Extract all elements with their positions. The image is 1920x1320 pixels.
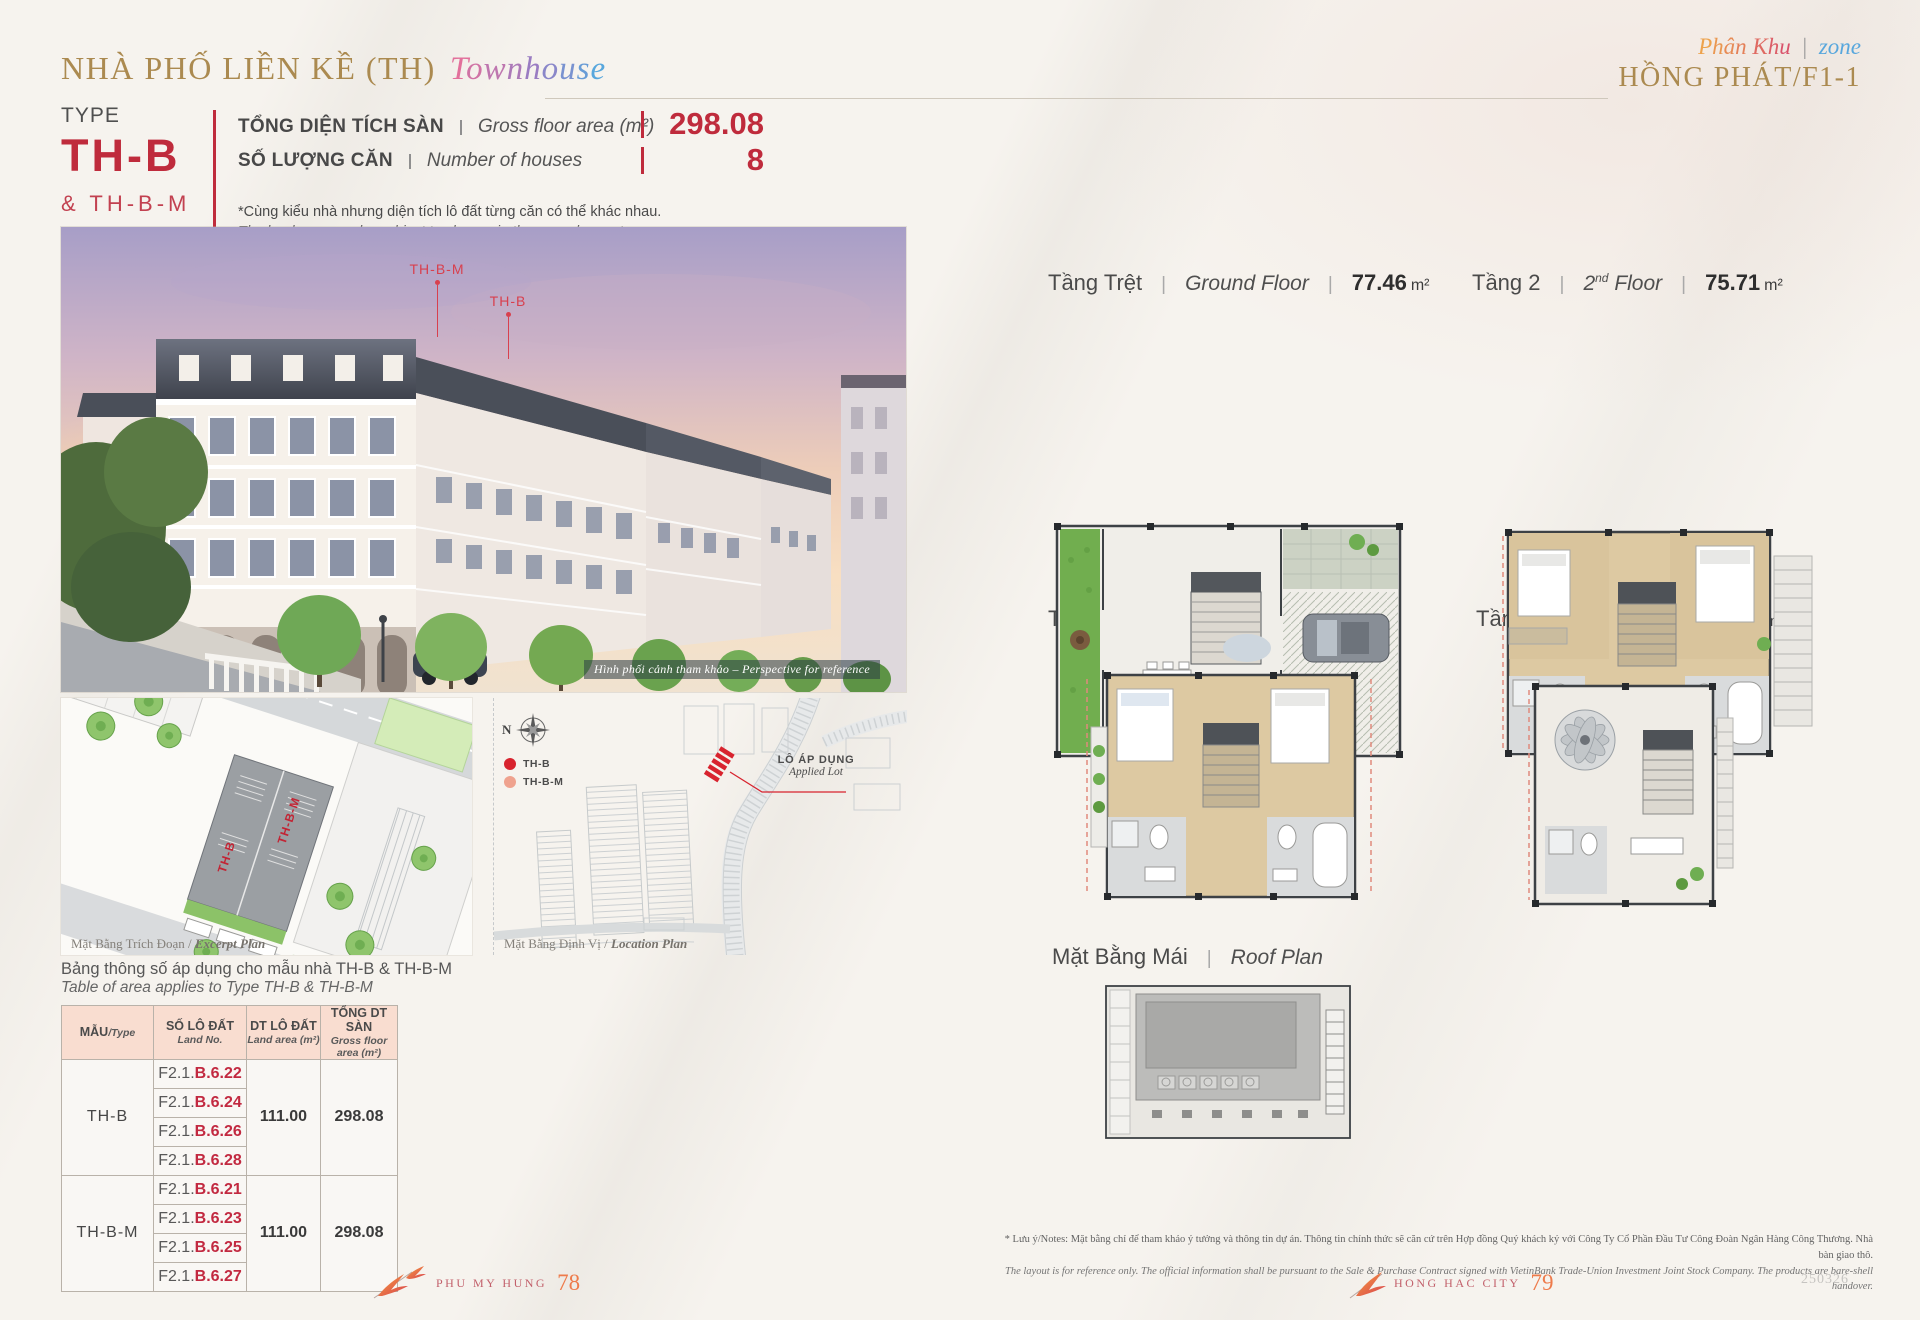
type-note-vi: *Cùng kiểu nhà nhưng diện tích lô đất từ… [238, 202, 661, 222]
roof-plan-drawing [1102, 982, 1359, 1149]
type-code: TH-B [61, 130, 190, 182]
location-plan-caption: Mặt Bằng Định Vị / Location Plan [504, 936, 687, 952]
caption-slash: / [604, 936, 611, 951]
land-area-cell: 111.00 [247, 1059, 321, 1175]
legend-dot-thb [504, 758, 516, 770]
type-cell: TH-B-M [62, 1175, 154, 1291]
table-caption-en: Table of area applies to Type TH-B & TH-… [61, 979, 452, 997]
table-row: TH-B-MF2.1.B.6.21111.00298.08 [62, 1175, 398, 1204]
page-number-right: 79 [1531, 1270, 1554, 1296]
legend-label: TH-B [523, 758, 550, 770]
spec-separator [409, 154, 411, 169]
divider-pipe: | [1161, 274, 1166, 296]
photo-marker-thb: TH-B [482, 293, 534, 359]
header-rule [545, 98, 1608, 99]
spec-label-en: Number of houses [427, 150, 582, 172]
col-header-land-no: SỐ LÔ ĐẤTLand No. [154, 1006, 247, 1060]
divider-pipe: | [1560, 274, 1565, 296]
floor-area-unit: m² [1411, 277, 1430, 295]
type-divider [213, 110, 216, 238]
zone-word: zone [1819, 34, 1861, 59]
spec-row-gross-area: TỔNG DIỆN TÍCH SÀN Gross floor area (m²) [238, 110, 654, 144]
document-code: 250326 [1801, 1272, 1849, 1288]
spec-label-vi: SỐ LƯỢNG CĂN [238, 150, 393, 172]
location-caption-vi: Mặt Bằng Định Vị [504, 936, 601, 951]
lot-number-cell: F2.1.B.6.26 [154, 1117, 247, 1146]
location-plan-panel: N TH-B TH-B-M LÔ ÁP DỤNG Applied Lot Mặt… [493, 698, 907, 955]
spec-list: TỔNG DIỆN TÍCH SÀN Gross floor area (m²)… [238, 110, 654, 178]
divider-pipe: | [1328, 274, 1333, 296]
location-plan-drawing [494, 698, 907, 955]
land-area-cell: 111.00 [247, 1175, 321, 1291]
floor-name-vi: Tầng Trệt [1048, 270, 1142, 296]
footer-left: PHU MY HUNG 78 [372, 1266, 580, 1300]
excerpt-caption-en: Excerpt Plan [195, 936, 265, 951]
area-table-block: Bảng thông số áp dụng cho mẫu nhà TH-B &… [61, 960, 452, 1292]
excerpt-plan-panel: TH-B-M TH-B Mặt Bằng Trí [61, 698, 472, 955]
marker-leader-line [437, 285, 438, 337]
type-block: TYPE TH-B & TH-B-M [61, 104, 190, 217]
zone-name: HỒNG PHÁT/F1-1 [1618, 62, 1861, 94]
caption-slash: / [188, 936, 195, 951]
footer-brand-left: PHU MY HUNG [436, 1276, 547, 1291]
zone-separator: | [1802, 34, 1807, 59]
spec-values: 298.08 8 [641, 108, 764, 180]
excerpt-caption-vi: Mặt Bằng Trích Đoạn [71, 936, 185, 951]
type-label: TYPE [61, 104, 190, 128]
marker-leader-line [508, 317, 509, 359]
houses-count-value: 8 [644, 142, 764, 178]
floor-area-unit: m² [1764, 277, 1783, 295]
third-floor-plan [1085, 667, 1373, 911]
footer-right: HONG HAC CITY 79 [1348, 1266, 1554, 1300]
legend-item-thbm: TH-B-M [504, 776, 563, 788]
floor-area-value: 77.46 [1352, 270, 1407, 296]
footer-brand-right: HONG HAC CITY [1394, 1276, 1521, 1291]
table-row: TH-BF2.1.B.6.22111.00298.08 [62, 1059, 398, 1088]
legend-item-thb: TH-B [504, 758, 563, 770]
lot-number-cell: F2.1.B.6.22 [154, 1059, 247, 1088]
compass-n-label: N [502, 722, 511, 738]
photo-marker-label: TH-B-M [407, 261, 467, 277]
page-title-vi: NHÀ PHỐ LIỀN KỀ (TH) [61, 50, 436, 87]
divider-pipe: | [1207, 948, 1212, 970]
floor-name-vi: Tầng 2 [1472, 270, 1541, 296]
roof-name-en: Roof Plan [1231, 946, 1323, 970]
legend-dot-thbm [504, 776, 516, 788]
zone-script: Phân Khu [1698, 34, 1791, 59]
photo-caption: Hình phối cảnh tham khảo – Perspective f… [584, 660, 880, 679]
phoenix-bird-icon [1348, 1266, 1388, 1300]
photo-marker-label: TH-B [482, 293, 534, 309]
floor-header-ground: Tầng Trệt|Ground Floor|77.46m² [1048, 270, 1429, 296]
fourth-floor-plan [1527, 678, 1739, 917]
perspective-rendering: TH-B-M TH-B Hình phối cảnh tham khảo – P… [61, 227, 906, 692]
lot-number-cell: F2.1.B.6.27 [154, 1262, 247, 1291]
excerpt-plan-caption: Mặt Bằng Trích Đoạn / Excerpt Plan [71, 936, 265, 952]
footnote-vi: * Lưu ý/Notes: Mặt bằng chỉ để tham khảo… [993, 1232, 1873, 1264]
excerpt-plan-drawing: TH-B-M TH-B [61, 698, 472, 955]
lot-number-cell: F2.1.B.6.25 [154, 1233, 247, 1262]
lot-number-cell: F2.1.B.6.21 [154, 1175, 247, 1204]
col-header-type: MẪU/Type [62, 1006, 154, 1060]
roof-plan-header: Mặt Bằng Mái|Roof Plan [1052, 944, 1323, 970]
lot-number-cell: F2.1.B.6.24 [154, 1088, 247, 1117]
spec-row-houses: SỐ LƯỢNG CĂN Number of houses [238, 144, 654, 178]
col-header-land-area: DT LÔ ĐẤTLand area (m²) [247, 1006, 321, 1060]
page-title: NHÀ PHỐ LIỀN KỀ (TH) Townhouse [61, 50, 606, 88]
compass: N [502, 712, 551, 748]
lot-number-cell: F2.1.B.6.28 [154, 1146, 247, 1175]
table-caption-vi: Bảng thông số áp dụng cho mẫu nhà TH-B &… [61, 960, 452, 979]
zone-script-line: Phân Khu | zone [1618, 34, 1861, 60]
floor-area-value: 75.71 [1705, 270, 1760, 296]
applied-lot-vi: LÔ ÁP DỤNG [756, 754, 876, 766]
col-header-gross-area: TỔNG DT SÀNGross floor area (m²) [321, 1006, 398, 1060]
type-alt: & TH-B-M [61, 191, 190, 217]
compass-rose-icon [515, 712, 551, 748]
table-header-row: MẪU/Type SỐ LÔ ĐẤTLand No. DT LÔ ĐẤTLand… [62, 1006, 398, 1060]
lot-number-cell: F2.1.B.6.23 [154, 1204, 247, 1233]
spec-separator [460, 120, 462, 135]
gross-area-value: 298.08 [644, 106, 764, 142]
gross-area-cell: 298.08 [321, 1059, 398, 1175]
applied-lot-callout: LÔ ÁP DỤNG Applied Lot [756, 754, 876, 778]
page-title-script: Townhouse [450, 51, 606, 88]
roof-name-vi: Mặt Bằng Mái [1052, 944, 1188, 970]
zone-block: Phân Khu | zone HỒNG PHÁT/F1-1 [1618, 34, 1861, 94]
floor-name-en: Ground Floor [1185, 271, 1309, 296]
location-legend: TH-B TH-B-M [504, 758, 563, 794]
legend-label: TH-B-M [523, 776, 563, 788]
area-table: MẪU/Type SỐ LÔ ĐẤTLand No. DT LÔ ĐẤTLand… [61, 1005, 398, 1292]
spec-label-en: Gross floor area (m²) [478, 116, 654, 138]
floor-header-2: Tầng 2|2nd Floor|75.71m² [1472, 270, 1783, 296]
type-cell: TH-B [62, 1059, 154, 1175]
spec-value-row: 8 [641, 144, 764, 176]
location-caption-en: Location Plan [611, 936, 687, 951]
divider-pipe: | [1681, 274, 1686, 296]
applied-lot-marker [704, 746, 735, 782]
photo-marker-thbm: TH-B-M [407, 261, 467, 337]
phoenix-birds-icon [372, 1266, 430, 1300]
applied-lot-en: Applied Lot [756, 766, 876, 778]
spec-value-row: 298.08 [641, 108, 764, 140]
floor-name-en: 2nd Floor [1583, 271, 1662, 296]
spec-label-vi: TỔNG DIỆN TÍCH SÀN [238, 116, 444, 138]
page-number-left: 78 [557, 1270, 580, 1296]
